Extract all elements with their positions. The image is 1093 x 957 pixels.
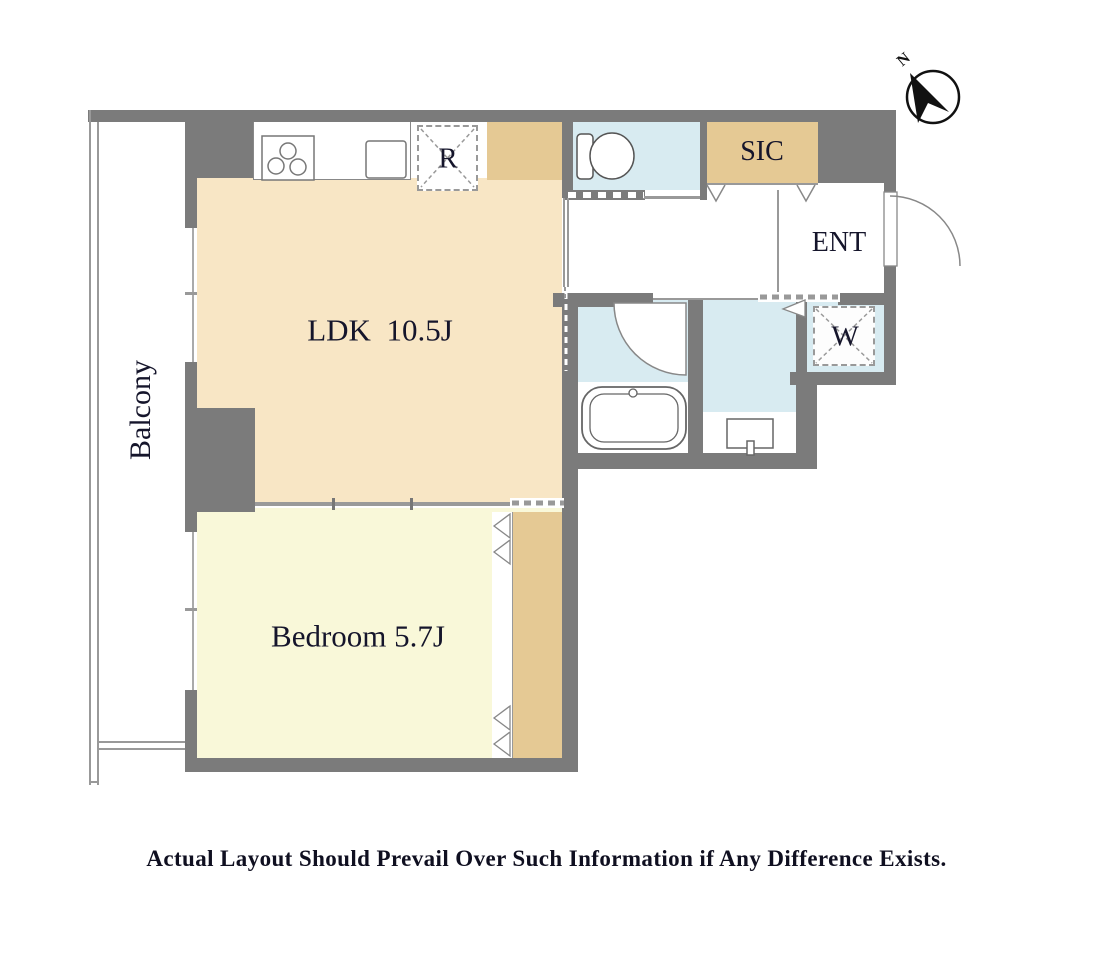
bathtub-icon bbox=[582, 387, 686, 449]
ldk-label: LDK 10.5J bbox=[307, 315, 453, 346]
ent-label: ENT bbox=[812, 229, 866, 257]
toilet-icon bbox=[577, 133, 634, 179]
entrance-door-swing-icon bbox=[884, 192, 960, 266]
vanity-sink-icon bbox=[727, 419, 773, 455]
refrigerator-label: R bbox=[438, 145, 457, 174]
balcony-label: Balcony bbox=[126, 360, 156, 460]
bedroom-label: Bedroom 5.7J bbox=[271, 621, 445, 652]
fixtures-overlay: N bbox=[0, 0, 1093, 957]
sic-door-marks bbox=[707, 185, 815, 201]
bathroom-door-swing-icon bbox=[614, 303, 686, 375]
kitchen-sink-icon bbox=[366, 141, 406, 178]
washer-label: W bbox=[831, 323, 858, 352]
disclaimer-caption: Actual Layout Should Prevail Over Such I… bbox=[0, 846, 1093, 872]
compass-north-icon: N bbox=[894, 49, 959, 123]
sic-label: SIC bbox=[740, 138, 784, 166]
closet-door-arrows bbox=[494, 514, 510, 756]
washroom-door-mark bbox=[760, 297, 838, 317]
compass-north-label: N bbox=[894, 49, 914, 70]
wall-dashed-edge bbox=[565, 287, 566, 371]
floorplan-canvas: N Balcony LDK 10.5J Bedroom 5.7J SIC ENT… bbox=[0, 0, 1093, 957]
stove-burners-icon bbox=[262, 136, 314, 180]
